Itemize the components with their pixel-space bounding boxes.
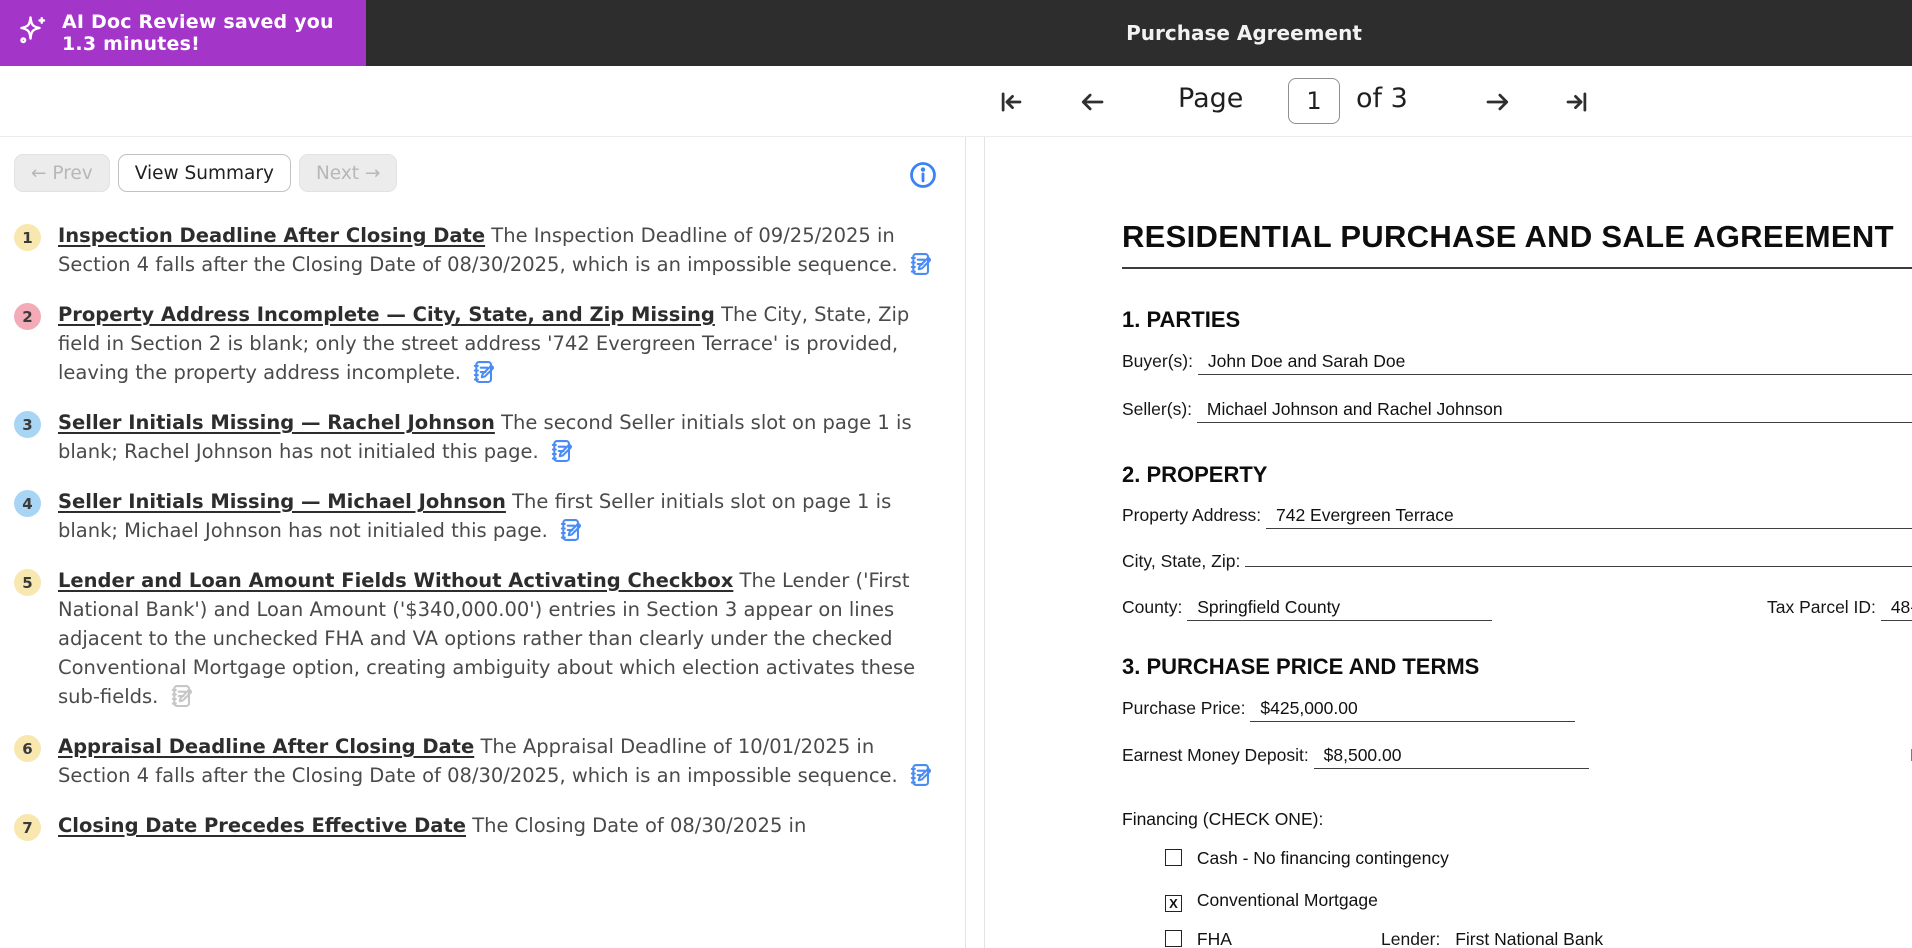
issue-title: Property Address Incomplete — City, Stat…: [58, 303, 715, 326]
document-page: RESIDENTIAL PURCHASE AND SALE AGREEMENT …: [985, 137, 1912, 948]
memo-edit-icon[interactable]: [909, 251, 935, 285]
property-address-field: Property Address: 742 Evergreen Terrace: [1122, 505, 1912, 529]
memo-edit-icon[interactable]: [170, 683, 196, 717]
city-state-zip-field: City, State, Zip:: [1122, 551, 1912, 572]
financing-label: Financing (CHECK ONE):: [1122, 809, 1912, 830]
issue-text: Seller Initials Missing — Rachel Johnson…: [58, 408, 940, 472]
sparkle-icon: [14, 13, 50, 53]
issue-number-badge: 3: [14, 411, 41, 438]
doc-title-rule: [1122, 267, 1912, 269]
financing-option-conventional: X Conventional Mortgage: [1165, 890, 1378, 912]
buyer-field: Buyer(s): John Doe and Sarah Doe: [1122, 351, 1912, 375]
seller-value: Michael Johnson and Rachel Johnson: [1197, 399, 1912, 423]
city-state-zip-value: [1245, 564, 1912, 567]
document-viewer[interactable]: RESIDENTIAL PURCHASE AND SALE AGREEMENT …: [984, 137, 1912, 948]
issue-number-badge: 5: [14, 569, 41, 596]
memo-edit-icon[interactable]: [550, 438, 576, 472]
issue-title: Seller Initials Missing — Rachel Johnson: [58, 411, 495, 434]
issue-text: Appraisal Deadline After Closing Date Th…: [58, 732, 940, 796]
top-bar: AI Doc Review saved you 1.3 minutes! Pur…: [0, 0, 1912, 66]
conventional-checkbox: X: [1165, 895, 1182, 912]
tax-parcel-label: Tax Parcel ID:: [1767, 597, 1876, 617]
lender-value: First National Bank: [1445, 929, 1735, 948]
issue-text: Property Address Incomplete — City, Stat…: [58, 300, 940, 393]
memo-edit-icon[interactable]: [909, 762, 935, 796]
tax-parcel-field: Tax Parcel ID: 48-291-0034: [1767, 597, 1912, 621]
county-row: County: Springfield County Tax Parcel ID…: [1122, 597, 1912, 621]
section-price-heading: 3. PURCHASE PRICE AND TERMS: [1122, 654, 1479, 680]
issue-list: 1 Inspection Deadline After Closing Date…: [14, 221, 965, 841]
lender-label: Lender:: [1381, 929, 1440, 948]
cash-option-label: Cash - No financing contingency: [1197, 848, 1449, 868]
earnest-money-row: Earnest Money Deposit: $8,500.00 Due by:…: [1122, 745, 1912, 769]
ai-badge-text: AI Doc Review saved you 1.3 minutes!: [62, 11, 366, 55]
issue-number-badge: 2: [14, 303, 41, 330]
issue-item-2[interactable]: 2 Property Address Incomplete — City, St…: [14, 300, 955, 393]
issue-number-badge: 4: [14, 490, 41, 517]
issue-text: Seller Initials Missing — Michael Johnso…: [58, 487, 940, 551]
info-icon[interactable]: [907, 159, 939, 191]
issue-item-3[interactable]: 3 Seller Initials Missing — Rachel Johns…: [14, 408, 955, 472]
conventional-option-label: Conventional Mortgage: [1197, 890, 1378, 910]
issue-number-badge: 1: [14, 224, 41, 251]
ai-doc-review-badge: AI Doc Review saved you 1.3 minutes!: [0, 0, 366, 66]
seller-label: Seller(s):: [1122, 399, 1192, 419]
issue-item-6[interactable]: 6 Appraisal Deadline After Closing Date …: [14, 732, 955, 796]
issue-title: Appraisal Deadline After Closing Date: [58, 735, 474, 758]
prev-issue-button[interactable]: ← Prev: [14, 154, 110, 192]
page-number-input[interactable]: [1288, 78, 1340, 124]
doc-title: RESIDENTIAL PURCHASE AND SALE AGREEMENT: [1122, 219, 1894, 255]
seller-field: Seller(s): Michael Johnson and Rachel Jo…: [1122, 399, 1912, 423]
buyer-value: John Doe and Sarah Doe: [1198, 351, 1912, 375]
first-page-button[interactable]: [990, 84, 1030, 120]
issue-text: Closing Date Precedes Effective Date The…: [58, 811, 940, 841]
county-value: Springfield County: [1187, 597, 1492, 621]
issue-title: Closing Date Precedes Effective Date: [58, 814, 466, 837]
property-address-label: Property Address:: [1122, 505, 1261, 525]
issue-item-1[interactable]: 1 Inspection Deadline After Closing Date…: [14, 221, 955, 285]
purchase-price-field: Purchase Price: $425,000.00: [1122, 698, 1912, 722]
financing-option-cash: Cash - No financing contingency: [1165, 848, 1449, 869]
next-issue-button[interactable]: Next →: [299, 154, 397, 192]
issue-description: The Closing Date of 08/30/2025 in: [472, 814, 806, 837]
memo-edit-icon[interactable]: [472, 359, 498, 393]
purchase-price-value: $425,000.00: [1250, 698, 1575, 722]
city-state-zip-label: City, State, Zip:: [1122, 551, 1240, 571]
earnest-money-label: Earnest Money Deposit:: [1122, 745, 1309, 765]
issue-title: Inspection Deadline After Closing Date: [58, 224, 485, 247]
next-page-button[interactable]: [1478, 84, 1518, 120]
ai-review-panel: ← Prev View Summary Next → 1 Inspection …: [0, 137, 966, 948]
fha-option-label: FHA: [1197, 929, 1232, 948]
cash-checkbox: [1165, 849, 1182, 866]
issue-text: Inspection Deadline After Closing Date T…: [58, 221, 940, 285]
issue-text: Lender and Loan Amount Fields Without Ac…: [58, 566, 940, 717]
page-count-label: of 3: [1356, 83, 1408, 114]
county-label: County:: [1122, 597, 1182, 617]
main-split: ← Prev View Summary Next → 1 Inspection …: [0, 137, 1912, 948]
section-property-heading: 2. PROPERTY: [1122, 462, 1267, 488]
purchase-price-label: Purchase Price:: [1122, 698, 1246, 718]
view-summary-button[interactable]: View Summary: [118, 154, 291, 192]
issue-number-badge: 7: [14, 814, 41, 841]
lender-field: Lender: First National Bank: [1381, 929, 1735, 948]
buyer-label: Buyer(s):: [1122, 351, 1193, 371]
previous-page-button[interactable]: [1072, 84, 1112, 120]
issue-item-5[interactable]: 5 Lender and Loan Amount Fields Without …: [14, 566, 955, 717]
fha-checkbox: [1165, 930, 1182, 947]
pager-toolbar: Page of 3: [0, 66, 1912, 137]
issue-item-7[interactable]: 7 Closing Date Precedes Effective Date T…: [14, 811, 955, 841]
review-nav-row: ← Prev View Summary Next →: [14, 153, 965, 193]
memo-edit-icon[interactable]: [559, 517, 585, 551]
last-page-button[interactable]: [1558, 84, 1598, 120]
document-title-bar: Purchase Agreement: [1126, 21, 1362, 45]
property-address-value: 742 Evergreen Terrace: [1266, 505, 1912, 529]
section-parties-heading: 1. PARTIES: [1122, 307, 1240, 333]
issue-item-4[interactable]: 4 Seller Initials Missing — Michael John…: [14, 487, 955, 551]
page-label: Page: [1178, 83, 1243, 114]
financing-option-fha: FHA Lender: First National Bank: [1165, 929, 1232, 948]
issue-title: Seller Initials Missing — Michael Johnso…: [58, 490, 506, 513]
panel-divider: [966, 137, 984, 948]
tax-parcel-value: 48-291-0034: [1881, 597, 1912, 621]
issue-number-badge: 6: [14, 735, 41, 762]
earnest-money-value: $8,500.00: [1314, 745, 1589, 769]
issue-title: Lender and Loan Amount Fields Without Ac…: [58, 569, 733, 592]
